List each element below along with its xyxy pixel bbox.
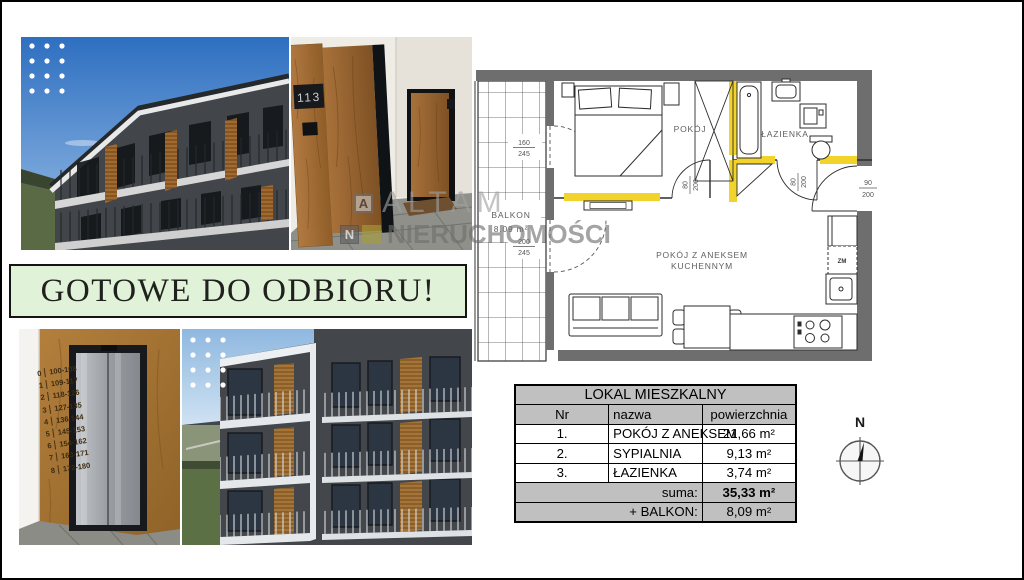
svg-text:200: 200 bbox=[862, 192, 874, 199]
floor-directory: 0100-108 1109-117 2118-126 3127-135 4136… bbox=[32, 357, 138, 478]
logo-a-icon: A bbox=[354, 194, 373, 213]
brand-line-2: N NIERUCHOMOŚCI bbox=[340, 221, 611, 247]
bathroom-sink bbox=[772, 79, 800, 101]
svg-text:80: 80 bbox=[791, 178, 798, 186]
table-balcony-row: + BALKON: 8,09 m² bbox=[515, 502, 796, 522]
banner-text: GOTOWE DO ODBIORU! bbox=[41, 273, 436, 310]
dim-bathroom-door: 80 200 bbox=[791, 173, 809, 191]
svg-text:90: 90 bbox=[864, 180, 872, 187]
svg-text:245: 245 bbox=[518, 250, 530, 257]
hall-cabinet bbox=[737, 164, 772, 196]
wood-slat-accent bbox=[105, 144, 117, 203]
col-header-nr: Nr bbox=[515, 405, 609, 425]
dim-bedroom-door: 80 200 bbox=[683, 176, 701, 194]
dim-entrance-door: 90 200 bbox=[859, 180, 877, 199]
col-header-area: powierzchnia bbox=[702, 405, 796, 425]
compass: N bbox=[834, 414, 886, 498]
area-table: LOKAL MIESZKALNY Nr nazwa powierzchnia 1… bbox=[514, 384, 797, 523]
building-exterior-photo bbox=[21, 37, 289, 250]
svg-text:160: 160 bbox=[518, 140, 530, 147]
table-row: 1. POKÓJ Z ANEKSEM 21,66 m² bbox=[515, 424, 796, 444]
table-sum-row: suma: 35,33 m² bbox=[515, 483, 796, 503]
brand-line-1: A ALTAM bbox=[340, 188, 611, 218]
building-exterior-art bbox=[21, 37, 289, 250]
bathroom-label: ŁAZIENKA bbox=[761, 129, 809, 139]
bed bbox=[562, 83, 679, 176]
table-row: 3. ŁAZIENKA 3,74 m² bbox=[515, 463, 796, 483]
living-room-label-2: KUCHENNYM bbox=[671, 261, 733, 271]
kitchen-counter bbox=[730, 216, 857, 350]
toilet bbox=[810, 136, 832, 159]
svg-text:200: 200 bbox=[801, 176, 808, 188]
ready-banner: GOTOWE DO ODBIORU! bbox=[9, 264, 467, 318]
washing-machine bbox=[800, 104, 826, 128]
bathtub bbox=[737, 82, 761, 158]
facade-photo bbox=[182, 329, 472, 545]
real-estate-flyer: 113 GOTOWE DO ODBIORU! bbox=[0, 0, 1024, 580]
dishwasher-label: ZM bbox=[838, 259, 847, 265]
table-header-row: Nr nazwa powierzchnia bbox=[515, 405, 796, 425]
bedroom-label: POKÓJ bbox=[674, 124, 707, 134]
brand-subname: NIERUCHOMOŚCI bbox=[387, 221, 611, 247]
elevator-photo: 0100-108 1109-117 2118-126 3127-135 4136… bbox=[19, 329, 180, 545]
table-title: LOKAL MIESZKALNY bbox=[515, 385, 796, 405]
living-room-label-1: POKÓJ Z ANEKSEM bbox=[656, 250, 748, 260]
logo-n-icon: N bbox=[340, 225, 359, 244]
svg-text:80: 80 bbox=[683, 181, 690, 189]
brand-name: ALTAM bbox=[382, 188, 508, 218]
facade-art bbox=[182, 329, 472, 545]
svg-text:245: 245 bbox=[518, 151, 530, 158]
sofa bbox=[569, 294, 662, 336]
logo-square-icon bbox=[362, 225, 381, 244]
brand-watermark: A ALTAM N NIERUCHOMOŚCI bbox=[340, 188, 611, 247]
col-header-name: nazwa bbox=[609, 405, 703, 425]
compass-north-label: N bbox=[855, 414, 865, 430]
access-panel bbox=[302, 122, 318, 136]
door-number: 113 bbox=[297, 90, 321, 105]
svg-text:200: 200 bbox=[693, 179, 700, 191]
table-row: 2. SYPIALNIA 9,13 m² bbox=[515, 444, 796, 464]
